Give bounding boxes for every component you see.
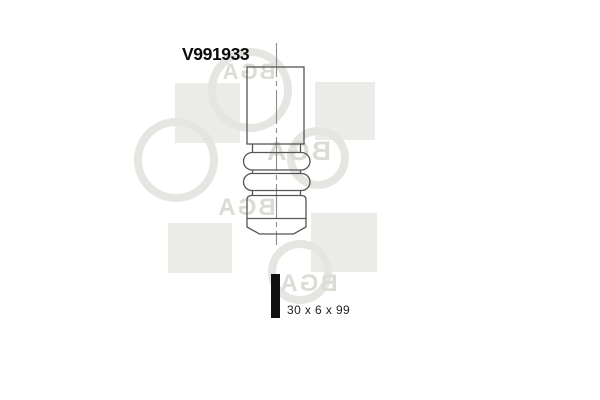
- valve-technical-drawing: [0, 0, 600, 400]
- part-number-label: V991933: [182, 44, 249, 65]
- valve-stem-cylinder: [247, 67, 304, 144]
- dimensions-label: 30 x 6 x 99: [287, 303, 350, 317]
- dimension-scale-bar: [271, 274, 280, 318]
- product-image: BGA BGA BGA BGA V991933 30 x 6 x 99: [0, 0, 600, 400]
